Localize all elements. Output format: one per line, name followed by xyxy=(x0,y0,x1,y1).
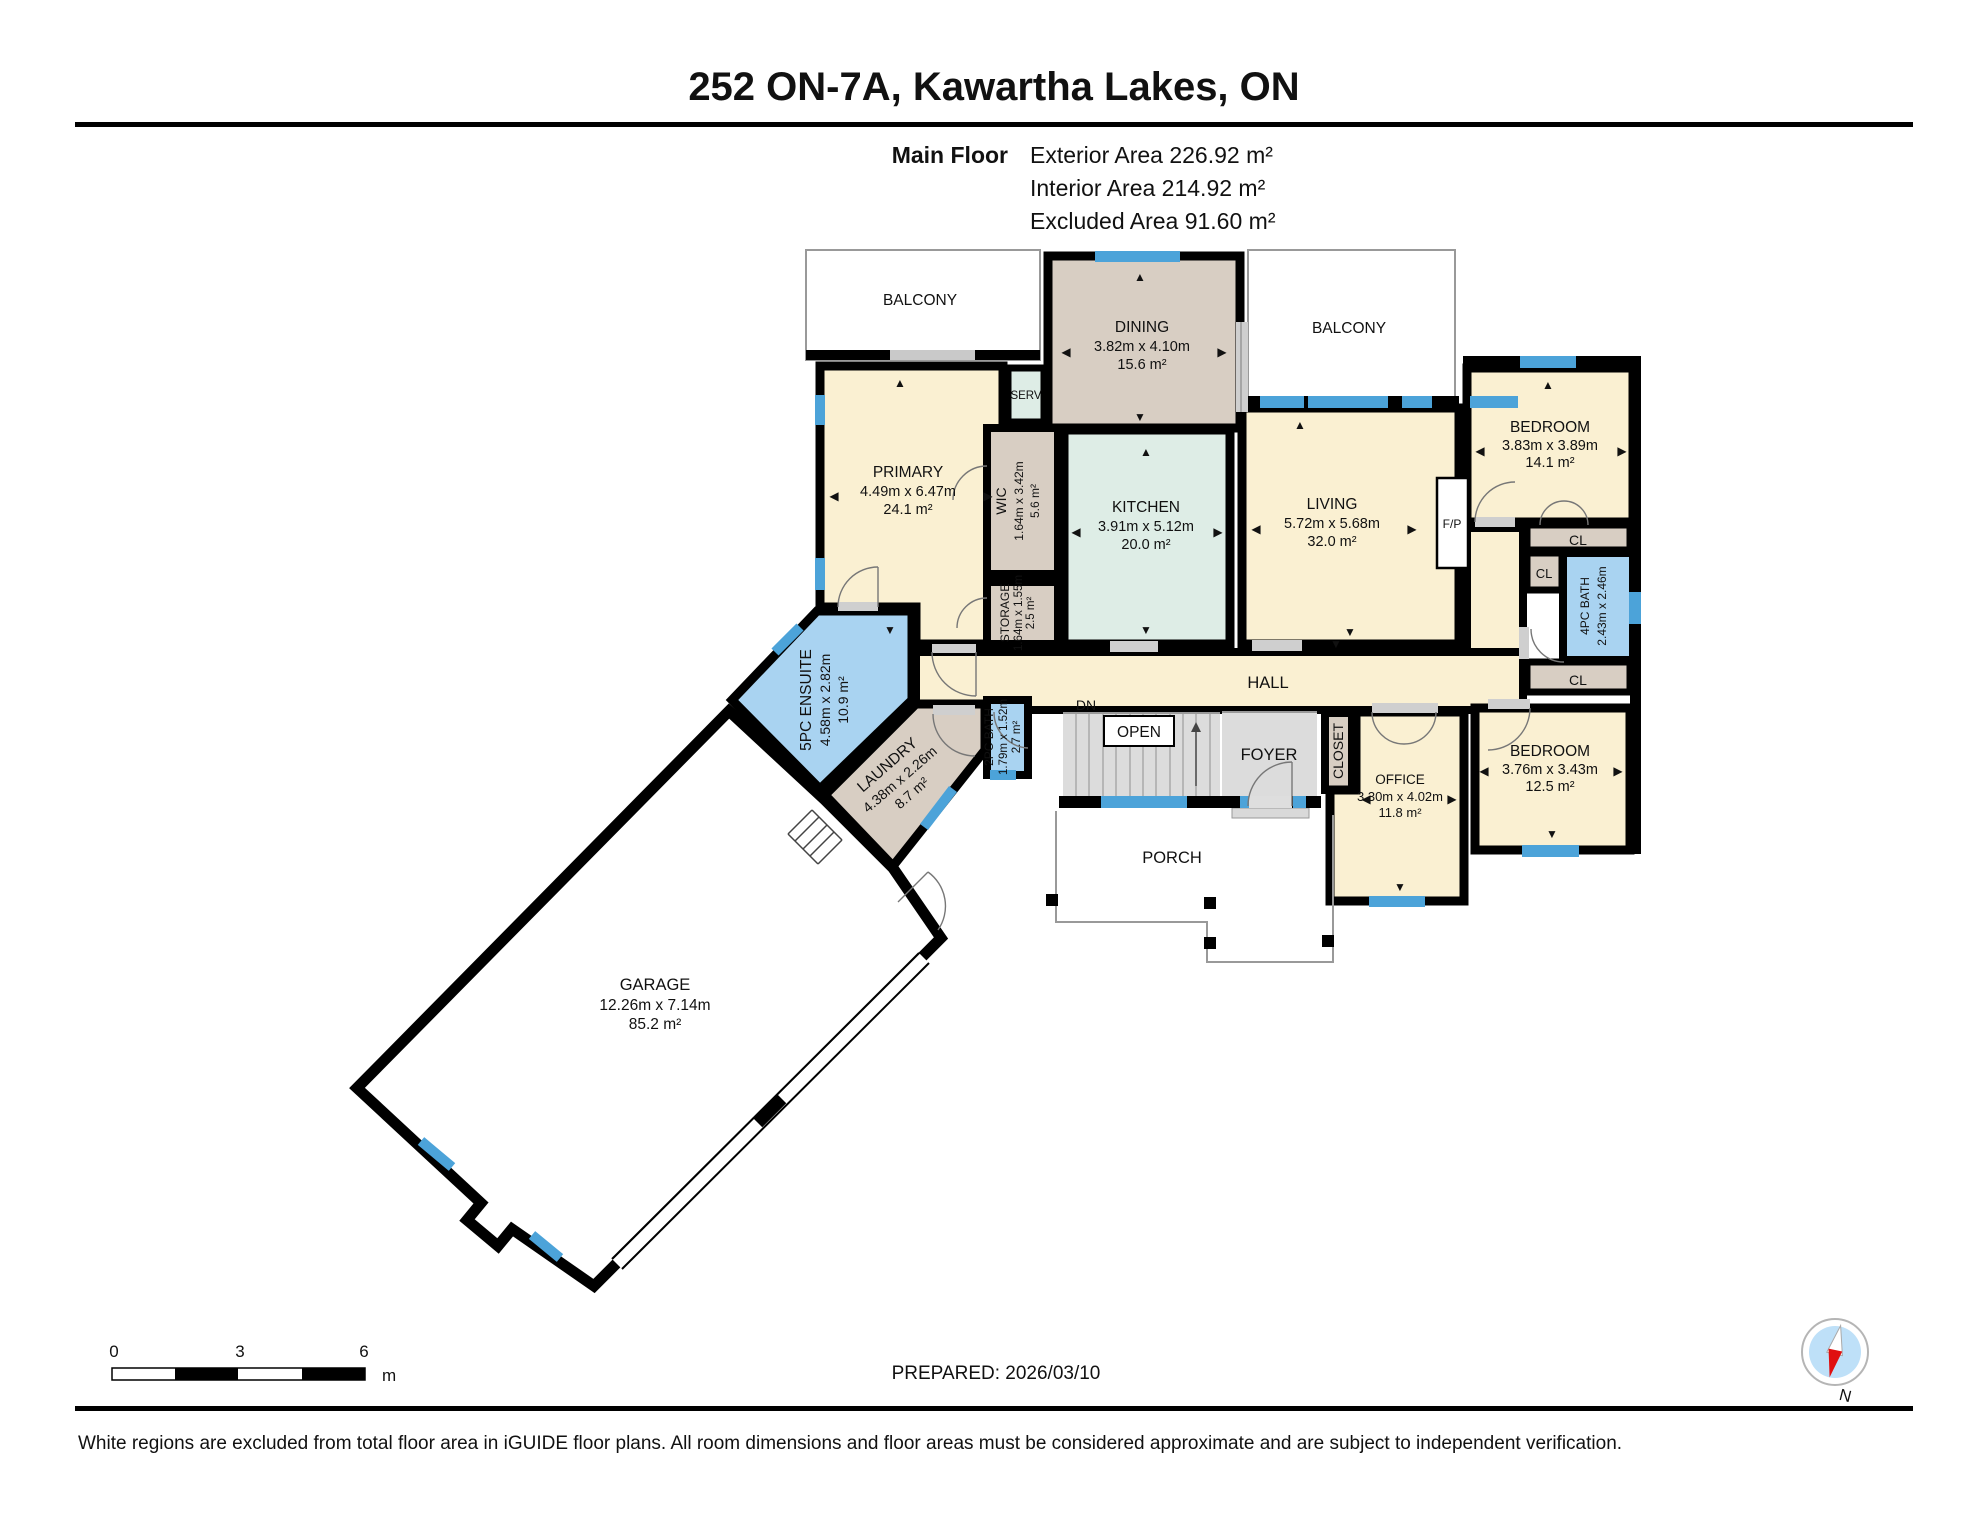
dimension-arrow-icon: ▶ xyxy=(1407,522,1417,536)
label-garage-area: 85.2 m² xyxy=(629,1016,682,1033)
label-living-area: 32.0 m² xyxy=(1307,534,1356,550)
svg-text:STORAGE: STORAGE xyxy=(998,584,1012,642)
floor-plan-page: 252 ON-7A, Kawartha Lakes, ON Main Floor… xyxy=(0,0,1988,1536)
label-bedroom-tr-name: BEDROOM xyxy=(1510,419,1590,436)
stat-exterior-area: Exterior Area 226.92 m² xyxy=(1030,142,1273,168)
dimension-arrow-icon: ▲ xyxy=(1134,270,1146,284)
header-rule xyxy=(75,122,1913,127)
dimension-arrow-icon: ▼ xyxy=(884,623,896,637)
dimension-arrow-icon: ▼ xyxy=(1134,410,1146,424)
prepared-date: PREPARED: 2026/03/10 xyxy=(892,1363,1101,1384)
dimension-arrow-icon: ▼ xyxy=(1330,637,1342,651)
scale-6: 6 xyxy=(359,1342,368,1361)
label-bedroom-br-dims: 3.76m x 3.43m xyxy=(1502,762,1598,778)
floor-label: Main Floor xyxy=(892,142,1008,168)
scale-unit: m xyxy=(382,1366,396,1385)
label-open: OPEN xyxy=(1117,724,1161,741)
compass: N xyxy=(1802,1319,1868,1406)
dimension-arrow-icon: ◀ xyxy=(1061,345,1071,359)
dimension-arrow-icon: ▼ xyxy=(1546,827,1558,841)
dimension-arrow-icon: ◀ xyxy=(829,489,839,503)
label-porch: PORCH xyxy=(1142,849,1202,867)
dimension-arrow-icon: ▶ xyxy=(1613,764,1623,778)
dimension-arrow-icon: ◀ xyxy=(1475,444,1485,458)
page-title: 252 ON-7A, Kawartha Lakes, ON xyxy=(688,65,1299,109)
dimension-arrow-icon: ◀ xyxy=(1071,525,1081,539)
svg-text:2PC BATH: 2PC BATH xyxy=(982,708,996,766)
label-fireplace: F/P xyxy=(1443,517,1462,531)
dimension-arrow-icon: ◀ xyxy=(1361,792,1371,806)
svg-text:WIC: WIC xyxy=(993,487,1009,514)
label-garage-name: GARAGE xyxy=(620,976,691,994)
dimension-arrow-icon: ▲ xyxy=(1140,445,1152,459)
label-cl1: CL xyxy=(1569,532,1587,548)
label-kitchen-dims: 3.91m x 5.12m xyxy=(1098,519,1194,535)
dimension-arrow-icon: ◀ xyxy=(1251,522,1261,536)
footer-rule xyxy=(75,1406,1913,1411)
label-bedroom-br-area: 12.5 m² xyxy=(1525,779,1574,795)
label-living-name: LIVING xyxy=(1307,496,1358,513)
dimension-arrow-icon: ▶ xyxy=(983,489,993,503)
label-bedroom-br-name: BEDROOM xyxy=(1510,743,1590,760)
compass-north-label: N xyxy=(1837,1386,1853,1406)
disclaimer-text: White regions are excluded from total fl… xyxy=(78,1433,1622,1454)
label-living-dims: 5.72m x 5.68m xyxy=(1284,516,1380,532)
dimension-arrow-icon: ▶ xyxy=(1617,444,1627,458)
label-serv: SERV xyxy=(1010,390,1041,402)
svg-text:4.58m x 2.82m: 4.58m x 2.82m xyxy=(817,654,833,747)
label-foyer: FOYER xyxy=(1241,746,1298,764)
dimension-arrow-icon: ▼ xyxy=(1344,625,1356,639)
scale-bar: 0 3 6 m xyxy=(109,1342,396,1385)
dimension-arrow-icon: ▲ xyxy=(894,376,906,390)
label-cl3: CL xyxy=(1569,672,1587,688)
floor-plan-canvas: 252 ON-7A, Kawartha Lakes, ON Main Floor… xyxy=(0,0,1988,1536)
scale-0: 0 xyxy=(109,1342,118,1361)
svg-text:CLOSET: CLOSET xyxy=(1330,723,1346,779)
foyer-landing xyxy=(1232,808,1309,818)
scale-3: 3 xyxy=(235,1342,244,1361)
dimension-arrow-icon: ◀ xyxy=(1479,764,1489,778)
label-dining-name: DINING xyxy=(1115,319,1169,336)
label-primary-area: 24.1 m² xyxy=(883,502,932,518)
label-balcony-left: BALCONY xyxy=(883,292,957,309)
porch-outline xyxy=(1056,811,1333,962)
dimension-arrow-icon: ▲ xyxy=(1542,378,1554,392)
label-dn: DN xyxy=(1076,697,1096,713)
dimension-arrow-icon: ▼ xyxy=(1140,623,1152,637)
label-office-area: 11.8 m² xyxy=(1378,805,1422,820)
svg-text:2.7 m²: 2.7 m² xyxy=(1011,721,1023,754)
svg-text:5.6 m²: 5.6 m² xyxy=(1028,484,1042,518)
label-hall: HALL xyxy=(1247,674,1288,692)
label-garage-dims: 12.26m x 7.14m xyxy=(599,997,710,1014)
svg-text:5PC ENSUITE: 5PC ENSUITE xyxy=(798,649,815,751)
label-dining-dims: 3.82m x 4.10m xyxy=(1094,339,1190,355)
label-closet: CLOSET xyxy=(1330,723,1346,779)
label-primary-name: PRIMARY xyxy=(873,464,943,481)
stat-interior-area: Interior Area 214.92 m² xyxy=(1030,175,1266,201)
svg-text:4PC BATH: 4PC BATH xyxy=(1578,577,1592,635)
dimension-arrow-icon: ▶ xyxy=(1217,345,1227,359)
label-kitchen-area: 20.0 m² xyxy=(1121,537,1170,553)
stat-excluded-area: Excluded Area 91.60 m² xyxy=(1030,208,1276,234)
dimension-arrow-icon: ▼ xyxy=(1394,880,1406,894)
balcony-left-door-gap xyxy=(890,350,975,360)
dimension-arrow-icon: ▶ xyxy=(1213,525,1223,539)
svg-text:1.64m x 3.42m: 1.64m x 3.42m xyxy=(1012,461,1026,540)
label-bedroom-tr-area: 14.1 m² xyxy=(1525,455,1574,471)
label-bedroom-tr-dims: 3.83m x 3.89m xyxy=(1502,438,1598,454)
label-primary-dims: 4.49m x 6.47m xyxy=(860,484,956,500)
label-kitchen-name: KITCHEN xyxy=(1112,499,1180,516)
dimension-arrow-icon: ▶ xyxy=(1447,792,1457,806)
label-office-name: OFFICE xyxy=(1375,772,1425,787)
svg-text:10.9 m²: 10.9 m² xyxy=(835,676,851,724)
label-balcony-right: BALCONY xyxy=(1312,320,1386,337)
label-dining-area: 15.6 m² xyxy=(1117,357,1166,373)
dimension-arrow-icon: ▲ xyxy=(1294,418,1306,432)
svg-text:1.79m x 1.52m: 1.79m x 1.52m xyxy=(998,699,1010,775)
label-cl2: CL xyxy=(1536,566,1553,581)
svg-text:1.64m x 1.55m: 1.64m x 1.55m xyxy=(1013,575,1025,651)
svg-text:2.43m x 2.46m: 2.43m x 2.46m xyxy=(1595,566,1609,645)
svg-text:2.5 m²: 2.5 m² xyxy=(1025,597,1037,630)
